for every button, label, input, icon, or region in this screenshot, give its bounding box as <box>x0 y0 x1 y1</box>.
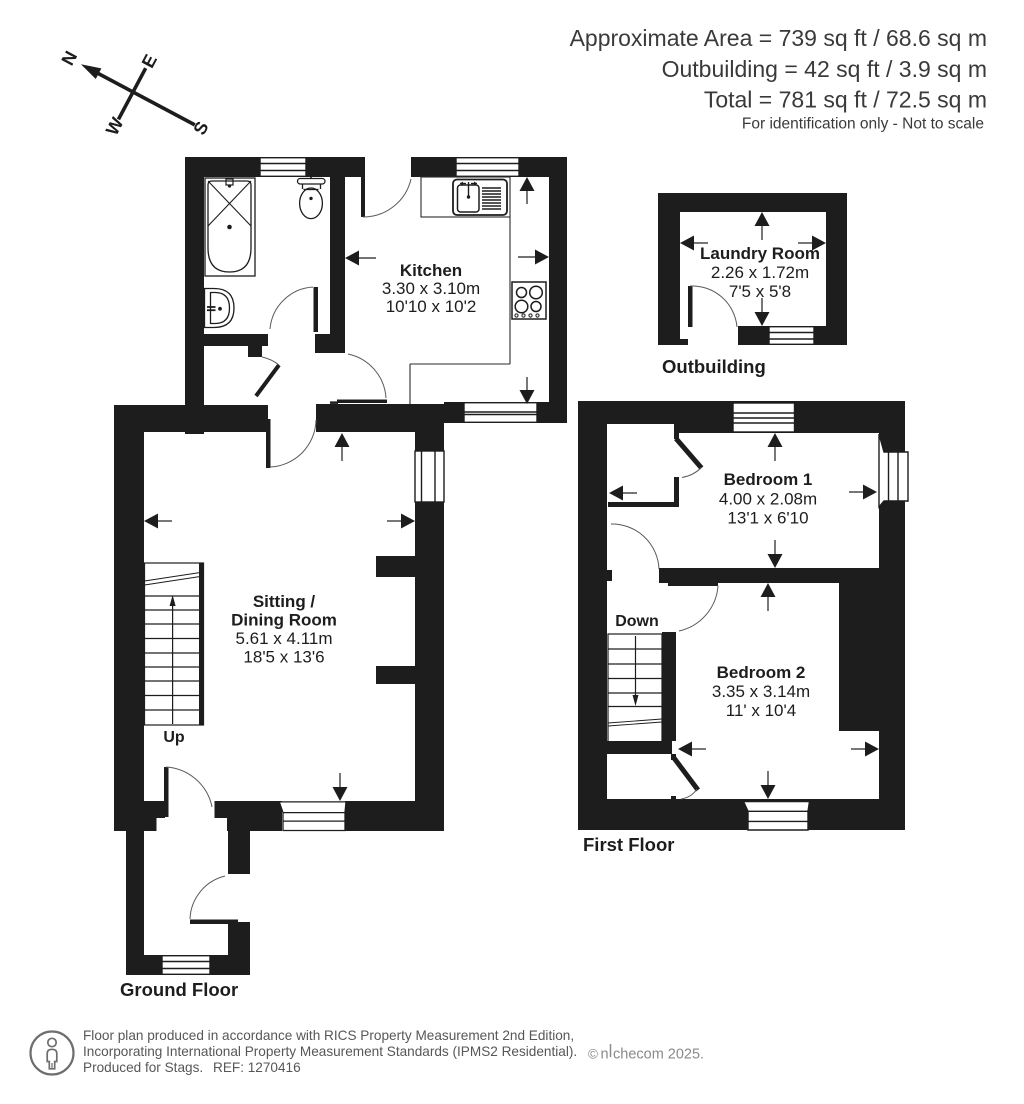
svg-text:©: © <box>588 1047 598 1062</box>
svg-text:REF: 1270416: REF: 1270416 <box>213 1060 301 1075</box>
svg-text:Outbuilding = 42 sq ft / 3.9 s: Outbuilding = 42 sq ft / 3.9 sq m <box>662 56 987 82</box>
svg-text:5.61 x 4.11m: 5.61 x 4.11m <box>235 629 332 648</box>
svg-text:Incorporating International Pr: Incorporating International Property Mea… <box>83 1044 577 1059</box>
svg-text:Kitchen: Kitchen <box>400 261 462 280</box>
svg-text:2.26 x 1.72m: 2.26 x 1.72m <box>711 263 809 282</box>
svg-text:Dining Room: Dining Room <box>231 611 337 630</box>
svg-text:Produced for Stags.: Produced for Stags. <box>83 1060 203 1075</box>
svg-text:Laundry Room: Laundry Room <box>700 244 820 263</box>
svg-text:Sitting /: Sitting / <box>253 592 316 611</box>
svg-text:Up: Up <box>163 729 185 746</box>
svg-text:Approximate Area = 739 sq ft /: Approximate Area = 739 sq ft / 68.6 sq m <box>570 25 987 51</box>
svg-text:10'10 x 10'2: 10'10 x 10'2 <box>386 297 477 316</box>
svg-text:Bedroom 2: Bedroom 2 <box>717 663 806 682</box>
svg-text:3.35 x 3.14m: 3.35 x 3.14m <box>712 682 810 701</box>
svg-text:7'5 x 5'8: 7'5 x 5'8 <box>729 282 791 301</box>
svg-text:Floor plan produced in accorda: Floor plan produced in accordance with R… <box>83 1028 574 1043</box>
svg-text:n: n <box>601 1047 609 1063</box>
svg-text:3.30 x 3.10m: 3.30 x 3.10m <box>382 279 480 298</box>
svg-text:11' x 10'4: 11' x 10'4 <box>726 701 796 720</box>
svg-text:Down: Down <box>615 613 659 630</box>
svg-text:Ground Floor: Ground Floor <box>120 979 238 1000</box>
svg-text:Bedroom 1: Bedroom 1 <box>724 470 813 489</box>
svg-text:Total = 781 sq ft / 72.5 sq m: Total = 781 sq ft / 72.5 sq m <box>704 87 987 113</box>
svg-text:First Floor: First Floor <box>583 834 674 855</box>
svg-text:4.00 x 2.08m: 4.00 x 2.08m <box>719 490 817 509</box>
svg-text:18'5 x 13'6: 18'5 x 13'6 <box>243 648 324 667</box>
svg-text:Outbuilding: Outbuilding <box>662 356 766 377</box>
svg-text:checom 2025.: checom 2025. <box>613 1047 704 1063</box>
svg-text:13'1 x 6'10: 13'1 x 6'10 <box>727 509 808 528</box>
svg-text:For identification only - Not: For identification only - Not to scale <box>742 116 984 133</box>
